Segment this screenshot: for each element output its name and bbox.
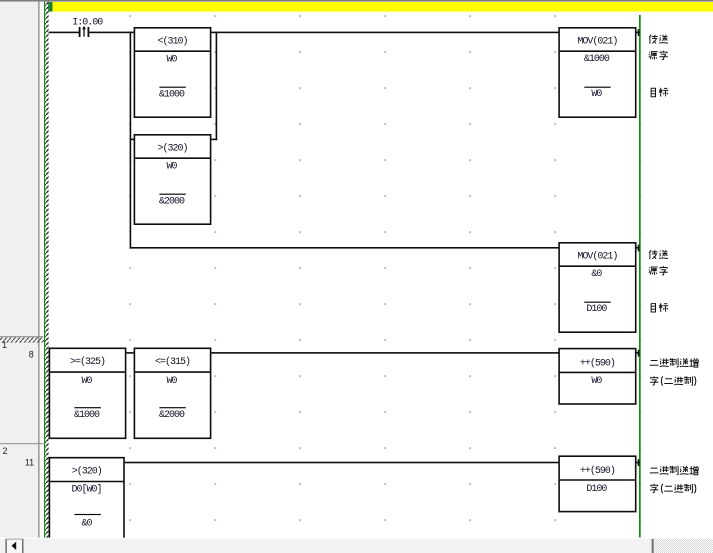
svg-text:++(590): ++(590) [580, 358, 615, 370]
svg-text:W0: W0 [81, 376, 92, 387]
svg-text:8: 8 [29, 350, 34, 360]
svg-text:<(310): <(310) [157, 35, 187, 47]
svg-text:&0: &0 [81, 519, 92, 530]
svg-text:>=(325): >=(325) [70, 356, 105, 368]
svg-text:&1000: &1000 [159, 90, 185, 101]
svg-text:<=(315): <=(315) [155, 356, 190, 368]
svg-text:W0: W0 [166, 376, 177, 387]
svg-text:I:0.00: I:0.00 [72, 18, 103, 29]
svg-text:2: 2 [3, 446, 8, 456]
svg-text:MOV(021): MOV(021) [577, 35, 617, 47]
svg-text:D100: D100 [586, 484, 607, 495]
svg-text:&1000: &1000 [74, 410, 100, 421]
svg-text:D0[W0]: D0[W0] [71, 484, 101, 496]
svg-text:>(320): >(320) [157, 142, 187, 154]
svg-text:W0: W0 [166, 55, 177, 66]
svg-text:&1000: &1000 [584, 54, 610, 65]
svg-text:++(590): ++(590) [580, 465, 615, 477]
svg-text:MOV(021): MOV(021) [577, 250, 617, 262]
svg-text:11: 11 [25, 458, 34, 468]
svg-text:D100: D100 [586, 304, 607, 315]
svg-text:W0: W0 [591, 89, 602, 100]
svg-text:W0: W0 [166, 162, 177, 173]
svg-text:1: 1 [2, 340, 7, 350]
svg-text:>(320): >(320) [72, 465, 102, 477]
svg-text:&0: &0 [591, 269, 602, 280]
svg-text:W0: W0 [591, 376, 602, 387]
svg-text:&2000: &2000 [159, 197, 185, 208]
svg-text:&2000: &2000 [159, 410, 185, 421]
